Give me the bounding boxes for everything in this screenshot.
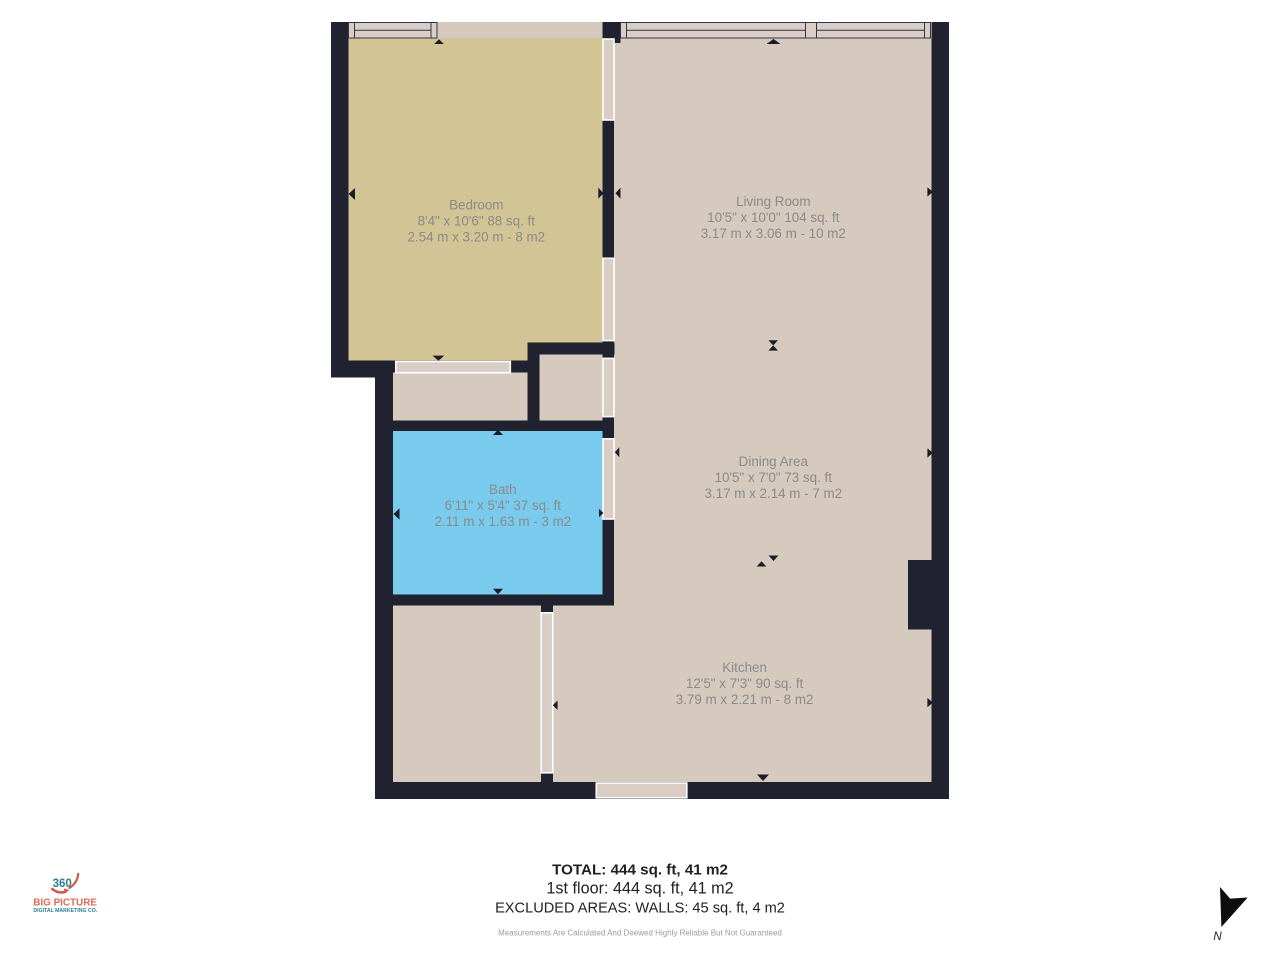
svg-text:10'5" x 10'0" 104 sq. ft: 10'5" x 10'0" 104 sq. ft bbox=[707, 210, 840, 225]
svg-text:EXCLUDED AREAS: WALLS: 45 sq.: EXCLUDED AREAS: WALLS: 45 sq. ft, 4 m2 bbox=[495, 900, 785, 916]
svg-text:3.79 m x 2.21 m - 8 m2: 3.79 m x 2.21 m - 8 m2 bbox=[676, 692, 814, 707]
svg-text:N: N bbox=[1213, 931, 1222, 943]
svg-text:2.11 m x 1.63 m - 3 m2: 2.11 m x 1.63 m - 3 m2 bbox=[434, 514, 571, 529]
svg-text:Dining Area: Dining Area bbox=[739, 454, 809, 469]
svg-text:Kitchen: Kitchen bbox=[722, 660, 767, 675]
svg-text:6'11" x 5'4" 37 sq. ft: 6'11" x 5'4" 37 sq. ft bbox=[445, 498, 562, 513]
svg-text:DIGITAL MARKETING CO.: DIGITAL MARKETING CO. bbox=[33, 908, 97, 914]
svg-text:12'5" x 7'3" 90 sq. ft: 12'5" x 7'3" 90 sq. ft bbox=[686, 676, 804, 691]
svg-text:Bath: Bath bbox=[489, 482, 517, 497]
svg-text:2.54 m x 3.20 m - 8 m2: 2.54 m x 3.20 m - 8 m2 bbox=[407, 230, 545, 245]
svg-text:10'5" x 7'0" 73 sq. ft: 10'5" x 7'0" 73 sq. ft bbox=[715, 470, 833, 485]
svg-text:Measurements Are Calculated An: Measurements Are Calculated And Deewed H… bbox=[498, 929, 782, 938]
svg-text:3.17 m x 3.06 m - 10 m2: 3.17 m x 3.06 m - 10 m2 bbox=[701, 226, 846, 241]
svg-text:TOTAL: 444 sq. ft, 41 m2: TOTAL: 444 sq. ft, 41 m2 bbox=[552, 862, 728, 879]
svg-text:Bedroom: Bedroom bbox=[449, 198, 503, 213]
svg-text:Living Room: Living Room bbox=[736, 194, 810, 209]
svg-text:1st floor: 444 sq. ft, 41 m2: 1st floor: 444 sq. ft, 41 m2 bbox=[546, 880, 733, 898]
svg-text:3.17 m x 2.14 m - 7 m2: 3.17 m x 2.14 m - 7 m2 bbox=[704, 486, 842, 501]
svg-text:8'4" x 10'6" 88 sq. ft: 8'4" x 10'6" 88 sq. ft bbox=[418, 214, 536, 229]
